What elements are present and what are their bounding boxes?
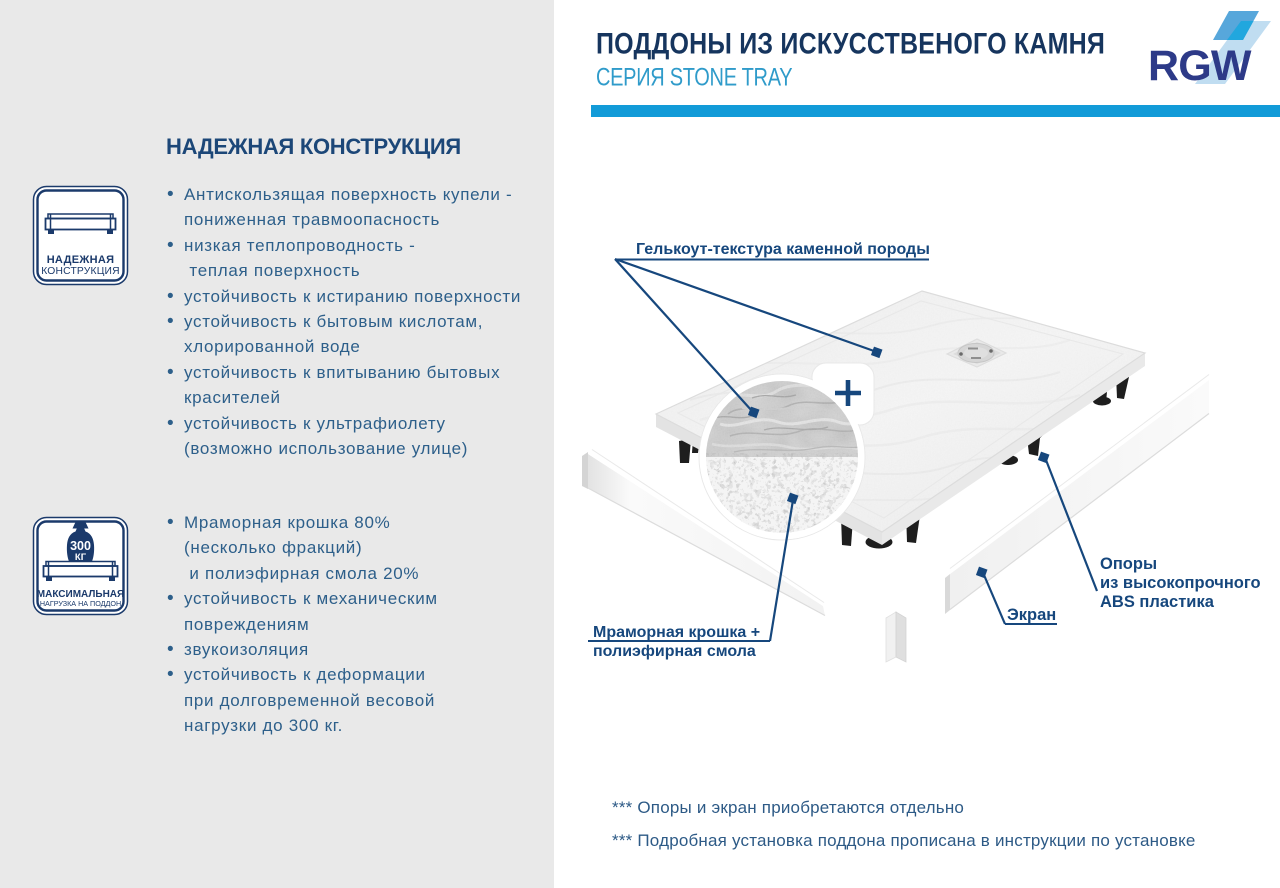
svg-text:Мраморная крошка +: Мраморная крошка +	[593, 624, 760, 641]
svg-text:Экран: Экран	[1007, 606, 1056, 624]
svg-text:Гелькоут-текстура каменной пор: Гелькоут-текстура каменной породы	[636, 241, 930, 258]
svg-text:*** Подробная установка поддон: *** Подробная установка поддона прописан…	[612, 831, 1196, 850]
svg-text:ABS пластика: ABS пластика	[1100, 593, 1215, 611]
svg-text:полиэфирная смола: полиэфирная смола	[593, 643, 756, 660]
svg-text:из высокопрочного: из высокопрочного	[1100, 574, 1261, 592]
svg-text:Опоры: Опоры	[1100, 555, 1157, 573]
svg-text:*** Опоры и экран приобретаютс: *** Опоры и экран приобретаются отдельно	[612, 798, 964, 817]
